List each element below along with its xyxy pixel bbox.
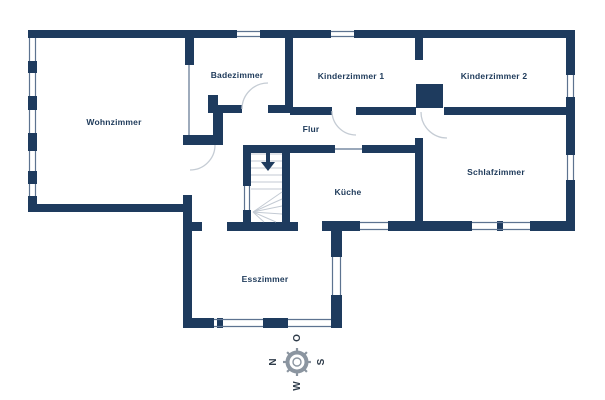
compass-w-label: W	[292, 381, 303, 391]
compass-n-label: N	[268, 358, 279, 365]
floor-plan-drawing: O S W N	[0, 0, 605, 400]
wall	[227, 222, 298, 231]
wall	[185, 32, 194, 65]
wall	[183, 222, 202, 231]
interior-walls	[183, 32, 567, 231]
wall	[415, 38, 423, 60]
wall	[183, 195, 192, 327]
chimney	[416, 84, 443, 108]
staircase	[251, 150, 282, 222]
wall	[28, 133, 37, 151]
room-label-flur: Flur	[303, 124, 320, 134]
wall	[28, 96, 37, 110]
wall	[208, 105, 242, 113]
door-arc-badezimmer	[242, 83, 268, 109]
wall	[322, 221, 360, 231]
wall	[28, 30, 237, 38]
wall	[354, 30, 575, 38]
wall	[260, 30, 331, 38]
room-label-kueche: Küche	[335, 187, 362, 197]
wall	[28, 61, 37, 73]
wall	[263, 318, 288, 328]
wall	[331, 295, 342, 328]
wall	[566, 38, 575, 75]
wall	[388, 221, 472, 231]
wall	[285, 38, 293, 113]
wall	[566, 97, 575, 155]
room-label-kinderzimmer1: Kinderzimmer 1	[318, 71, 385, 81]
wall	[530, 221, 575, 231]
wall	[415, 138, 423, 231]
wall	[290, 107, 332, 115]
wall	[282, 145, 290, 231]
wall	[444, 107, 567, 115]
room-label-kinderzimmer2: Kinderzimmer 2	[461, 71, 528, 81]
wall	[28, 204, 190, 212]
compass-o-label: O	[292, 334, 303, 342]
compass-rose: O S W N	[268, 334, 327, 391]
compass-s-label: S	[316, 358, 327, 365]
room-label-wohnzimmer: Wohnzimmer	[86, 117, 141, 127]
wall	[243, 145, 251, 186]
wall	[362, 145, 416, 153]
wall	[183, 318, 214, 328]
room-label-schlafzimmer: Schlafzimmer	[467, 167, 525, 177]
floor-plan: O S W N Wohnzimmer Badezimmer Kinderzimm…	[0, 0, 605, 400]
door-arc-wohnzimmer	[190, 145, 215, 170]
room-label-esszimmer: Esszimmer	[242, 274, 289, 284]
wall	[356, 107, 416, 115]
room-label-badezimmer: Badezimmer	[211, 70, 264, 80]
door-arc-kinderzimmer1	[332, 111, 356, 135]
wall	[28, 171, 37, 184]
door-arc-schlafzimmer	[421, 112, 447, 138]
